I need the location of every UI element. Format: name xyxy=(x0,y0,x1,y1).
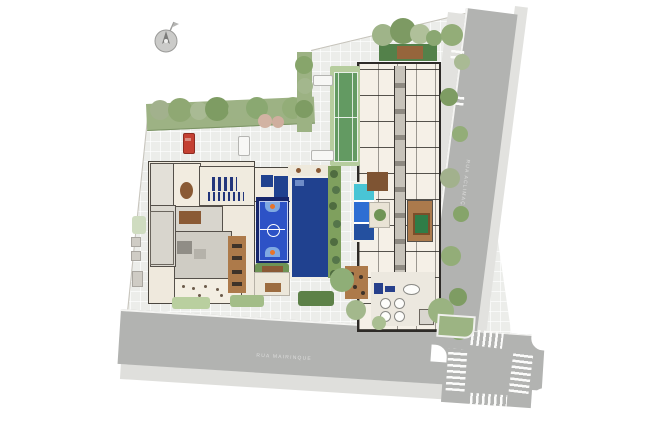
tree-canopy-icon xyxy=(372,316,386,330)
deck-tree-icon xyxy=(374,209,386,221)
party-room-furniture xyxy=(182,285,185,288)
hoop-top-icon xyxy=(270,204,275,209)
amenity-terrace xyxy=(254,272,290,296)
tree-canopy-icon xyxy=(441,246,461,266)
pool-side-deck xyxy=(369,202,390,228)
pool-hedge xyxy=(328,166,341,278)
gym-equipment-row-2 xyxy=(208,192,244,201)
planter-box xyxy=(132,271,143,287)
tree-canopy-icon xyxy=(150,100,170,120)
gym-equipment-row-1 xyxy=(212,177,237,191)
compass-north-icon xyxy=(148,14,184,58)
flowering-tree-icon xyxy=(272,116,284,128)
car-red xyxy=(183,133,195,154)
crosswalk-south xyxy=(470,393,508,408)
service-room-dark xyxy=(177,241,192,254)
billiards-table xyxy=(413,213,430,235)
lap-pool xyxy=(290,176,332,279)
tree-canopy-icon xyxy=(205,97,229,121)
spa-pool-large xyxy=(274,176,288,197)
round-table xyxy=(394,311,405,322)
car-white xyxy=(238,136,250,156)
tree-canopy-icon xyxy=(453,206,469,222)
lobby-sofa xyxy=(385,286,395,292)
tree-canopy-icon xyxy=(295,100,313,118)
lobby-sofa xyxy=(374,283,383,294)
flowering-tree-icon xyxy=(258,114,272,128)
tree-canopy-icon xyxy=(346,300,366,320)
oval-table xyxy=(403,284,420,295)
basketball-court xyxy=(256,197,289,263)
planter-box xyxy=(131,237,141,247)
tree-canopy-icon xyxy=(228,100,248,120)
garden-patch xyxy=(132,216,146,234)
court-center-circle xyxy=(267,224,280,237)
tree-canopy-icon xyxy=(440,168,460,188)
hedge-bottom xyxy=(230,295,264,307)
tree-canopy-icon xyxy=(441,24,463,46)
service-block xyxy=(150,211,174,265)
round-table xyxy=(394,298,405,309)
tree-canopy-icon xyxy=(168,98,192,122)
round-table xyxy=(380,298,391,309)
tree-canopy-icon xyxy=(452,126,468,142)
tree-canopy-icon xyxy=(440,88,458,106)
games-room xyxy=(407,200,433,242)
tree-canopy-icon xyxy=(297,78,313,94)
gazebo-pergola xyxy=(367,172,388,191)
spa-pool-small xyxy=(261,175,273,187)
crosswalk-west xyxy=(446,348,468,391)
hedge-bottom-dark xyxy=(298,291,334,306)
site-plan: RUA ACLIMAÇÃO RUA MAIRINQUE xyxy=(0,0,654,432)
roof-pergola xyxy=(397,46,423,59)
hoop-bottom-icon xyxy=(270,250,275,255)
dining-table xyxy=(180,182,193,199)
hedge-bottom xyxy=(172,297,210,309)
wood-deck-furniture xyxy=(232,244,242,248)
car-windshield xyxy=(185,138,191,141)
tree-canopy-icon xyxy=(295,56,313,74)
tennis-court xyxy=(334,72,358,162)
corner-garden xyxy=(436,314,476,340)
terrace-deck xyxy=(265,283,281,292)
hall-table xyxy=(179,211,201,224)
lap-pool-deck xyxy=(288,165,330,176)
street-label-bottom: RUA MAIRINQUE xyxy=(256,353,312,362)
car-white xyxy=(313,75,333,86)
van-white xyxy=(311,150,334,161)
tree-canopy-icon xyxy=(426,30,442,46)
planter-box xyxy=(131,251,141,261)
locker-rooms xyxy=(150,163,175,207)
parasol-table-icon xyxy=(296,168,301,173)
tree-canopy-icon xyxy=(454,54,470,70)
pool-steps xyxy=(295,180,304,186)
service-room-mid xyxy=(194,249,206,259)
curb-corner-se xyxy=(531,387,548,406)
shrub-icon xyxy=(330,170,338,178)
tree-canopy-icon xyxy=(330,268,354,292)
